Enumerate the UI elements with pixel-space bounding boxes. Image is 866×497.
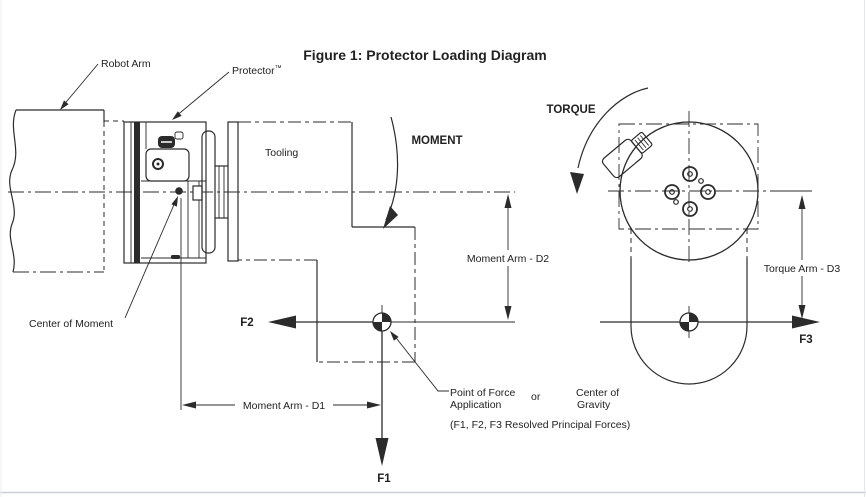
torque-arc [578, 88, 648, 168]
d2-arrow-up [505, 194, 512, 208]
bolt-left-center [670, 190, 675, 195]
dimension-d1: Moment Arm - D1 [181, 198, 381, 412]
d1-arrow-left [182, 402, 196, 409]
small-button [175, 132, 183, 139]
bolt-top [683, 167, 697, 181]
or-label: or [531, 391, 541, 403]
dimension-d2: Moment Arm - D2 [467, 194, 549, 320]
d3-label: Torque Arm - D3 [764, 263, 841, 275]
bolt-bottom-center [688, 207, 693, 212]
cg-marker-right [680, 313, 698, 331]
center-of-moment-dot [175, 187, 183, 195]
cg-quadrant-bl [373, 322, 382, 331]
point-of-force-leader [393, 334, 449, 391]
side-lug [193, 186, 202, 200]
moment-arrowhead [383, 206, 398, 229]
center-of-gravity-label-line1: Center of [576, 387, 619, 399]
center-of-gravity-label-line2: Gravity [577, 399, 611, 411]
moment-arc [386, 117, 398, 220]
torque-label: TORQUE [547, 104, 596, 116]
bolt-pattern [665, 167, 715, 216]
dowel-hole-2 [674, 200, 679, 205]
bolt-right-center [706, 190, 711, 195]
f2-label: F2 [240, 317, 253, 329]
f3-arrowhead [792, 316, 820, 329]
bolt-top-center [688, 172, 693, 177]
center-of-moment-label: Center of Moment [29, 318, 113, 330]
cg-right-quadrant-bl [680, 322, 689, 331]
protector-loading-diagram: Figure 1: Protector Loading Diagram [0, 0, 866, 497]
protector-tm-mark: ™ [275, 65, 282, 72]
moment-label: MOMENT [411, 135, 462, 147]
point-of-force-label-line2: Application [450, 399, 502, 411]
f1-arrowhead [376, 438, 389, 466]
connector-rib-1 [635, 140, 643, 150]
protector-label: Protector™ [232, 65, 282, 77]
tooling-label: Tooling [265, 147, 298, 159]
d3-arrow-up [799, 195, 806, 209]
robot-arm-label: Robot Arm [101, 58, 151, 70]
center-of-moment-leader-arrow [171, 196, 178, 207]
d1-arrow-right [367, 402, 381, 409]
robot-arm-leader-arrow [60, 100, 69, 110]
bolt-bottom [683, 202, 697, 216]
cg-quadrant-tr [382, 313, 391, 322]
robot-arm-outline [10, 110, 124, 272]
dowel-hole-1 [699, 179, 704, 184]
robot-arm-leader [62, 64, 98, 107]
figure-page: Figure 1: Protector Loading Diagram [0, 0, 866, 497]
bolt-right [701, 185, 715, 199]
dimension-d3: Torque Arm - D3 [764, 195, 841, 319]
cg-right-quadrant-tr [689, 313, 698, 322]
center-of-moment-leader [125, 200, 176, 318]
d1-label: Moment Arm - D1 [243, 400, 325, 412]
f2-arrowhead [268, 316, 296, 329]
resolved-forces-note: (F1, F2, F3 Resolved Principal Forces) [450, 419, 630, 431]
protector-dark-band [134, 122, 140, 263]
cg-marker-left [373, 313, 391, 331]
bottom-slot [171, 255, 180, 259]
protector-leader [175, 72, 229, 117]
bolt-left [665, 185, 679, 199]
robot-arm-break-line [10, 110, 16, 272]
d3-arrow-down [799, 305, 806, 319]
torque-arrowhead [570, 172, 584, 194]
d2-label: Moment Arm - D2 [467, 253, 549, 265]
f1-label: F1 [377, 473, 391, 485]
sensor-eye-dot [157, 163, 160, 166]
point-of-force-label-line1: Point of Force [450, 387, 516, 399]
d2-arrow-down [505, 306, 512, 320]
protector-label-text: Protector [232, 65, 275, 77]
tooling-plate [228, 122, 238, 261]
figure-title: Figure 1: Protector Loading Diagram [303, 47, 546, 63]
f3-label: F3 [799, 334, 812, 346]
